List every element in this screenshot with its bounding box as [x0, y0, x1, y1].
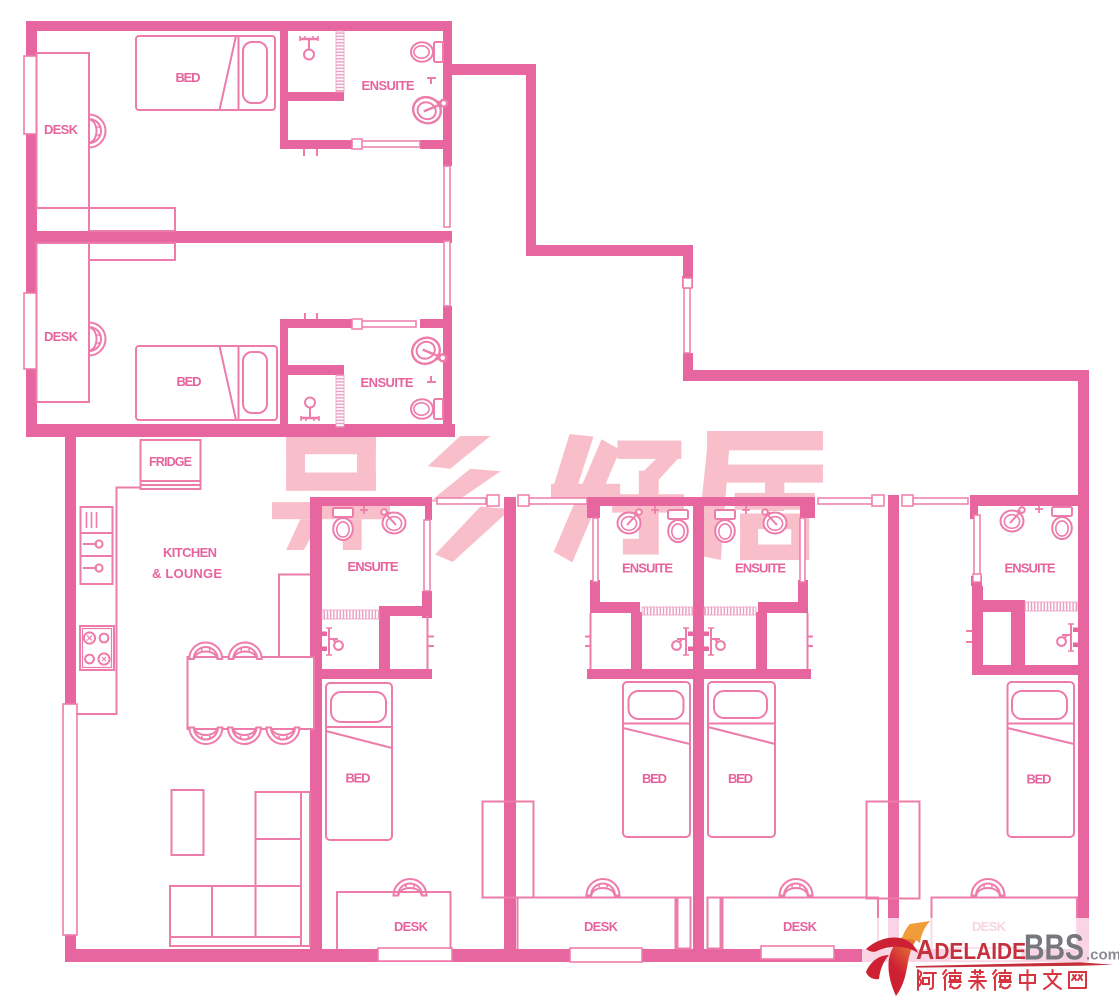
svg-text:ENSUITE: ENSUITE: [348, 559, 399, 574]
svg-text:ENSUITE: ENSUITE: [1005, 561, 1056, 576]
svg-text:BED: BED: [1027, 772, 1052, 787]
svg-text:ADELAIDE: ADELAIDE: [916, 934, 1026, 965]
svg-text:DESK: DESK: [783, 919, 818, 934]
svg-text:BED: BED: [642, 771, 667, 786]
svg-text:ENSUITE: ENSUITE: [362, 78, 415, 93]
svg-text:DESK: DESK: [394, 919, 429, 934]
svg-text:ENSUITE: ENSUITE: [361, 375, 414, 390]
svg-text:FRIDGE: FRIDGE: [149, 455, 192, 469]
svg-text:ENSUITE: ENSUITE: [735, 561, 786, 576]
svg-text:.com: .com: [1086, 947, 1119, 964]
svg-text:DESK: DESK: [44, 122, 79, 137]
svg-text:DESK: DESK: [584, 919, 619, 934]
svg-text:BED: BED: [346, 771, 371, 786]
svg-text:ENSUITE: ENSUITE: [622, 561, 673, 576]
svg-text:KITCHEN: KITCHEN: [163, 545, 217, 560]
svg-text:BED: BED: [177, 374, 202, 389]
svg-text:BBS: BBS: [1024, 927, 1084, 968]
svg-text:& LOUNGE: & LOUNGE: [152, 566, 222, 581]
svg-text:DESK: DESK: [44, 329, 79, 344]
svg-text:BED: BED: [728, 771, 753, 786]
svg-text:BED: BED: [176, 70, 201, 85]
